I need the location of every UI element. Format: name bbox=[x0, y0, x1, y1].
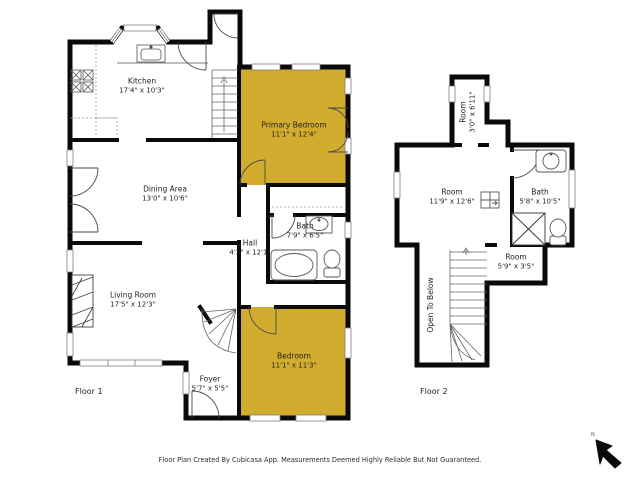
floor2-walls bbox=[397, 77, 572, 365]
room-label-f2-bath: Bath 5'8" x 10'5" bbox=[519, 188, 560, 207]
shower-icon bbox=[512, 213, 545, 245]
label-open-to-below: Open To Below bbox=[426, 277, 436, 332]
toilet-icon bbox=[324, 250, 340, 277]
flue-icon bbox=[481, 192, 499, 208]
room-label-f2-room-top: Room 3'0" x 6'11" bbox=[459, 91, 478, 132]
room-label-f2-room-main: Room 11'9" x 12'6" bbox=[429, 188, 475, 207]
floorplan-page: Kitchen 17'4" x 10'3" Primary Bedroom 11… bbox=[0, 0, 640, 480]
floor2-label: Floor 2 bbox=[420, 387, 448, 396]
room-label-primary-bedroom: Primary Bedroom 11'1" x 12'4" bbox=[261, 121, 326, 140]
stove-icon bbox=[71, 70, 93, 92]
room-label-bedroom: Bedroom 11'1" x 11'3" bbox=[271, 352, 317, 371]
compass-arrow-icon bbox=[596, 440, 621, 468]
floor1-stairs bbox=[202, 70, 238, 353]
room-label-foyer: Foyer 5'7" x 5'5" bbox=[192, 375, 229, 394]
toilet-icon bbox=[550, 219, 566, 245]
room-label-living: Living Room 17'5" x 12'3" bbox=[110, 291, 156, 310]
footer-disclaimer: Floor Plan Created By Cubicasa App. Meas… bbox=[159, 456, 482, 464]
floor1-label: Floor 1 bbox=[75, 387, 103, 396]
fireplace-icon bbox=[72, 275, 93, 327]
room-label-hall: Hall 4'3" x 12'1" bbox=[229, 239, 270, 258]
room-label-kitchen: Kitchen 17'4" x 10'3" bbox=[119, 77, 165, 96]
compass-north-label: N bbox=[591, 432, 595, 438]
room-label-f2-room-bottom: Room 5'9" x 3'5" bbox=[498, 253, 535, 272]
room-label-dining: Dining Area 13'0" x 10'6" bbox=[142, 185, 188, 204]
floor2-stairs bbox=[450, 248, 487, 362]
room-label-bath1: Bath 7'9" x 6'5" bbox=[287, 222, 324, 241]
